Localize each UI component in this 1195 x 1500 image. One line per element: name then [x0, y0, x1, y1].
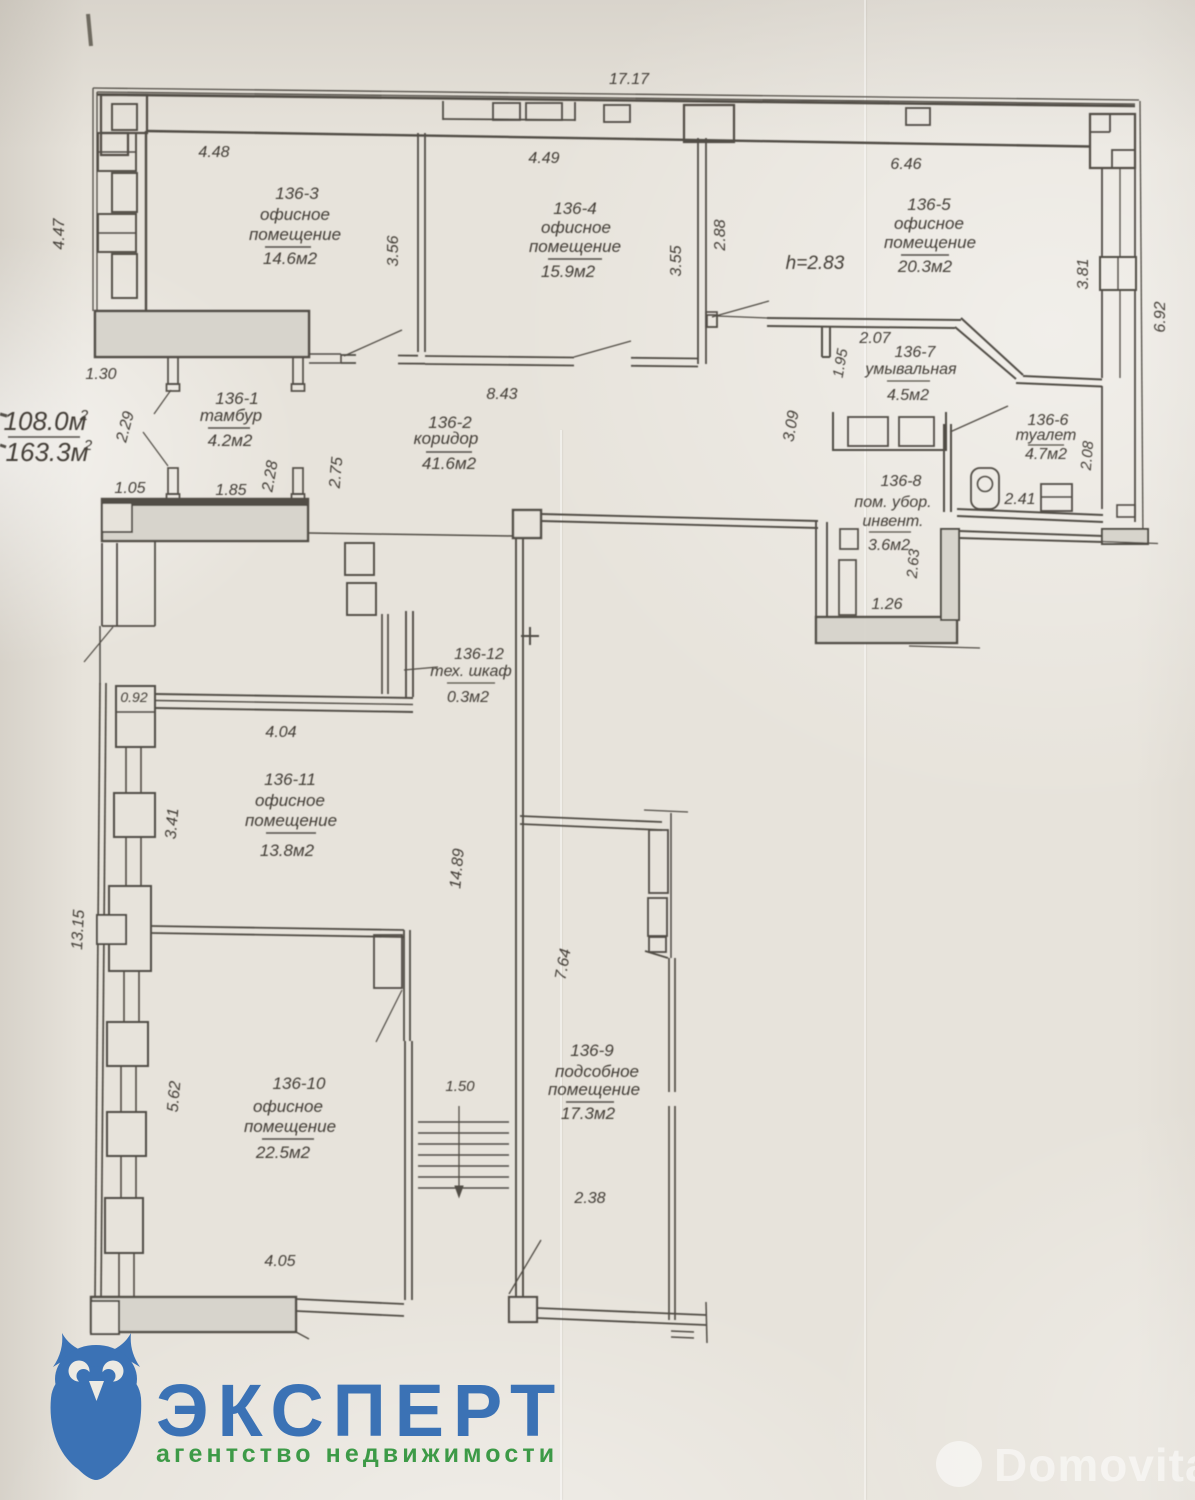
svg-text:7.64: 7.64: [552, 947, 574, 981]
svg-text:136-4: 136-4: [553, 199, 596, 218]
svg-text:15.9м2: 15.9м2: [541, 262, 596, 281]
svg-text:3.81: 3.81: [1075, 258, 1092, 289]
svg-text:Domovita: Domovita: [994, 1439, 1195, 1491]
svg-text:тамбур: тамбур: [200, 406, 262, 425]
svg-text:4.49: 4.49: [528, 150, 559, 167]
svg-text:1.85: 1.85: [215, 482, 246, 499]
svg-text:136-10: 136-10: [273, 1074, 326, 1093]
svg-text:1.30: 1.30: [85, 366, 116, 383]
svg-text:офисное: офисное: [894, 214, 964, 233]
svg-text:6.92: 6.92: [1152, 301, 1169, 332]
svg-text:14.89: 14.89: [447, 848, 467, 889]
svg-text:4.05: 4.05: [264, 1253, 295, 1270]
svg-text:офисное: офисное: [255, 791, 325, 810]
svg-text:3.09: 3.09: [780, 409, 802, 443]
svg-text:41.6м2: 41.6м2: [422, 454, 477, 473]
svg-text:туалет: туалет: [1016, 427, 1077, 444]
svg-text:1.95: 1.95: [830, 347, 852, 379]
svg-text:помещение: помещение: [244, 1117, 336, 1136]
svg-text:h=2.83: h=2.83: [786, 253, 845, 274]
svg-text:136-8: 136-8: [881, 473, 922, 490]
svg-text:17.17: 17.17: [609, 71, 650, 88]
svg-text:помещение: помещение: [529, 237, 621, 256]
svg-text:2.41: 2.41: [1003, 491, 1035, 508]
svg-text:4.7м2: 4.7м2: [1025, 446, 1067, 463]
svg-text:3.55: 3.55: [668, 245, 685, 276]
svg-text:4.5м2: 4.5м2: [887, 387, 929, 404]
svg-text:помещение: помещение: [245, 811, 337, 830]
svg-text:3.41: 3.41: [163, 807, 183, 840]
svg-text:136-9: 136-9: [570, 1041, 614, 1060]
svg-text:13.8м2: 13.8м2: [260, 841, 315, 860]
svg-text:2.88: 2.88: [712, 219, 729, 251]
svg-text:6.46: 6.46: [890, 156, 921, 173]
svg-text:136-11: 136-11: [264, 770, 316, 789]
svg-text:агентство недвижимости: агентство недвижимости: [156, 1440, 558, 1468]
svg-text:4.47: 4.47: [51, 217, 68, 249]
svg-text:0.3м2: 0.3м2: [447, 689, 489, 706]
svg-text:14.6м2: 14.6м2: [263, 249, 318, 268]
svg-text:подсобное: подсобное: [555, 1062, 639, 1081]
svg-text:108.0м: 108.0м: [4, 406, 87, 436]
svg-text:13.15: 13.15: [69, 909, 88, 950]
svg-text:офисное: офисное: [260, 205, 330, 224]
svg-text:136-3: 136-3: [275, 184, 319, 203]
svg-text:4.04: 4.04: [265, 724, 296, 741]
svg-text:офисное: офисное: [541, 218, 611, 237]
svg-text:136-12: 136-12: [454, 646, 504, 663]
svg-text:коридор: коридор: [414, 429, 479, 448]
svg-text:5.62: 5.62: [165, 1080, 185, 1113]
svg-text:умывальная: умывальная: [864, 361, 957, 378]
svg-text:163.3м: 163.3м: [6, 437, 89, 467]
svg-text:1.26: 1.26: [871, 596, 902, 613]
svg-text:4.2м2: 4.2м2: [208, 431, 253, 450]
svg-text:тех. шкаф: тех. шкаф: [430, 663, 512, 680]
svg-text:17.3м2: 17.3м2: [561, 1104, 616, 1123]
svg-text:22.5м2: 22.5м2: [255, 1143, 311, 1162]
svg-text:помещение: помещение: [249, 225, 341, 244]
svg-text:1.05: 1.05: [114, 480, 145, 497]
svg-text:136-5: 136-5: [907, 195, 951, 214]
svg-text:2: 2: [83, 437, 93, 454]
svg-text:пом. убор.: пом. убор.: [854, 494, 931, 511]
svg-text:2.08: 2.08: [1078, 440, 1098, 472]
svg-text:1.50: 1.50: [445, 1078, 475, 1095]
svg-text:офисное: офисное: [253, 1097, 323, 1116]
svg-text:20.3м2: 20.3м2: [897, 257, 953, 276]
svg-text:инвент.: инвент.: [863, 513, 924, 530]
svg-text:4.48: 4.48: [198, 144, 229, 161]
svg-text:2: 2: [79, 407, 89, 424]
svg-text:2.75: 2.75: [327, 456, 347, 490]
svg-text:3.56: 3.56: [385, 235, 402, 266]
svg-text:помещение: помещение: [884, 233, 976, 252]
svg-text:3.6м2: 3.6м2: [868, 537, 910, 554]
svg-text:помещение: помещение: [548, 1080, 640, 1099]
svg-text:2.28: 2.28: [259, 459, 281, 494]
svg-text:8.43: 8.43: [486, 386, 517, 403]
svg-text:2.63: 2.63: [904, 548, 924, 580]
svg-text:2.29: 2.29: [113, 409, 138, 445]
svg-text:136-7: 136-7: [895, 344, 937, 361]
svg-text:2.07: 2.07: [858, 330, 891, 347]
svg-text:2.38: 2.38: [573, 1190, 605, 1207]
svg-text:0.92: 0.92: [120, 689, 147, 705]
